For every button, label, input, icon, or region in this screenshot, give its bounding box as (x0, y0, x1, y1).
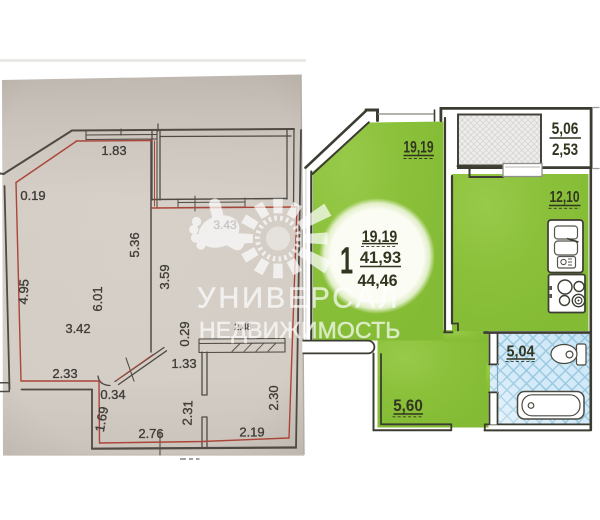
svg-text:4.95: 4.95 (15, 279, 31, 305)
svg-text:0.29: 0.29 (177, 321, 192, 346)
svg-text:3.59: 3.59 (157, 264, 172, 289)
svg-text:41,93: 41,93 (360, 249, 401, 267)
svg-text:12,10: 12,10 (549, 187, 579, 205)
svg-text:1.33: 1.33 (171, 356, 196, 371)
svg-text:5,06: 5,06 (552, 120, 579, 139)
svg-text:2,53: 2,53 (552, 141, 578, 160)
svg-text:2.19: 2.19 (239, 425, 264, 440)
svg-text:5,60: 5,60 (393, 397, 423, 415)
svg-text:2.76: 2.76 (138, 426, 163, 441)
svg-text:6.01: 6.01 (90, 286, 105, 311)
svg-text:0.34: 0.34 (100, 387, 125, 402)
svg-text:2.33: 2.33 (52, 366, 77, 381)
svg-text:0.19: 0.19 (20, 188, 45, 203)
svg-text:5,04: 5,04 (506, 343, 535, 361)
svg-text:3.42: 3.42 (65, 321, 90, 336)
svg-text:1.83: 1.83 (101, 143, 126, 158)
svg-text:1: 1 (340, 239, 353, 282)
svg-text:2.31: 2.31 (180, 400, 196, 426)
svg-text:2.30: 2.30 (266, 385, 281, 410)
svg-text:НЕДВИЖИМОСТЬ: НЕДВИЖИМОСТЬ (199, 317, 401, 343)
svg-text:УНИВЕРСАЛ: УНИВЕРСАЛ (197, 283, 400, 315)
svg-text:19,19: 19,19 (403, 139, 433, 157)
svg-text:5.36: 5.36 (127, 232, 142, 257)
